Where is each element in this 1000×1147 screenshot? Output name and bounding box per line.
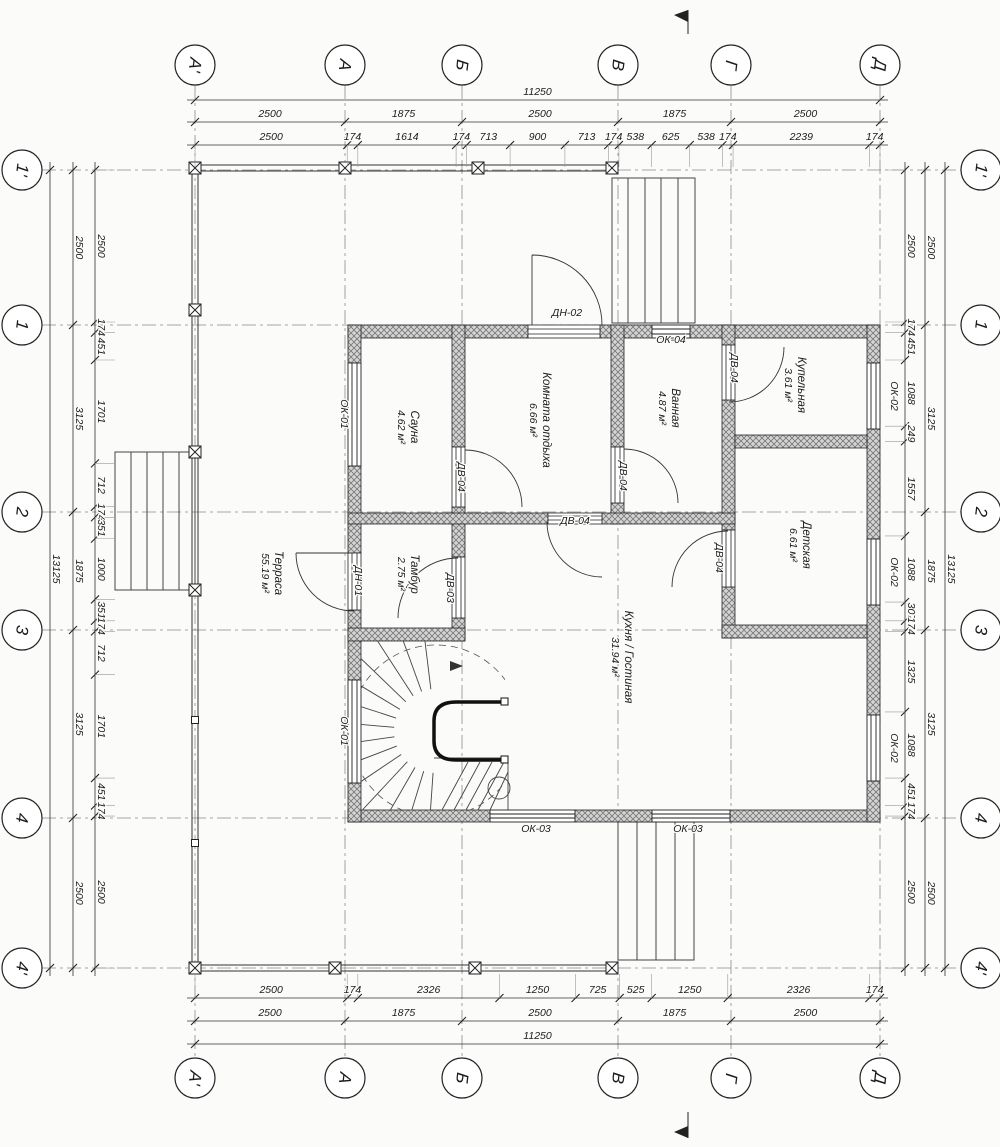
room-label: Ванная4.87 м²: [656, 388, 681, 427]
dim-label: 351: [95, 519, 107, 537]
dim-label: 1701: [95, 715, 107, 738]
dim-label: 3125: [73, 712, 85, 736]
stair-handrail: [434, 702, 505, 760]
dim-label: 1875: [73, 559, 85, 583]
room-name: Купельная: [795, 357, 807, 413]
room-label: Купельная3.61 м²: [782, 357, 807, 413]
dim-label: 451: [905, 338, 917, 356]
section-marker-top: [674, 10, 688, 34]
room-name: Комната отдыха: [540, 372, 552, 468]
opening-tag: ОК-02: [888, 733, 900, 763]
dim-label: 13125: [50, 554, 62, 583]
dim-label: 174: [95, 319, 107, 337]
walk-direction-arrow: [450, 661, 463, 671]
door-dn02: [528, 325, 600, 338]
dim-label: 2500: [527, 1007, 552, 1019]
left-exterior-stair: [115, 452, 195, 590]
floor-plan-drawing: 1125025001875250018752500250017416141747…: [0, 0, 1000, 1147]
dim-label: 2326: [786, 984, 811, 996]
opening-tag: ДВ-04: [455, 461, 467, 492]
dim-label: 2500: [257, 1007, 282, 1019]
dim-label: 174: [719, 131, 737, 143]
door-swing-arcs: [296, 255, 784, 618]
dim-label: 174: [95, 802, 107, 820]
dim-label: 2500: [925, 880, 937, 905]
dim-label: 713: [480, 131, 498, 143]
axis-bubble-label: Б: [452, 1071, 472, 1084]
window-ok03-2: [652, 810, 730, 822]
opening-tag: ОК-04: [656, 334, 686, 346]
dim-label: 2500: [925, 235, 937, 260]
dim-label: 174: [344, 131, 362, 143]
top-exterior-stair: [612, 178, 695, 323]
dim-label: 2500: [793, 1007, 818, 1019]
dim-label: 2500: [905, 233, 917, 258]
room-label: Детская6.61 м²: [787, 519, 812, 569]
axis-bubble-label: А': [185, 1069, 206, 1088]
dim-label: 538: [697, 131, 715, 143]
dim-label: 11250: [523, 86, 552, 98]
dim-label: 451: [95, 783, 107, 801]
walk-line: [350, 645, 522, 817]
dim-label: 1875: [663, 1007, 687, 1019]
dim-label: 1875: [392, 108, 416, 120]
axis-bubble-label: А: [335, 1070, 355, 1085]
room-area: 6.61 м²: [787, 528, 799, 563]
dim-label: 1875: [663, 108, 687, 120]
room-label: Комната отдыха6.66 м²: [527, 372, 552, 468]
dim-label: 900: [529, 131, 547, 143]
axis-bubble-label: А': [185, 56, 206, 75]
terrace-post: [192, 840, 199, 847]
window-ok02-1: [867, 363, 880, 429]
opening-tag: ДН-02: [551, 307, 582, 319]
window-ok02-2: [867, 539, 880, 605]
dim-label: 174: [866, 984, 884, 996]
dim-label: 2500: [95, 879, 107, 904]
dim-label: 1701: [95, 400, 107, 423]
opening-tag: ДВ-04: [713, 542, 725, 573]
dim-label: 13125: [945, 554, 957, 583]
dim-label: 174: [905, 319, 917, 337]
dim-label: 351: [95, 601, 107, 619]
room-label: Кухня / Гостиная31.94 м²: [609, 611, 634, 704]
opening-tag: ДВ-04: [728, 352, 740, 383]
dim-label: 174: [344, 984, 362, 996]
terrace-post: [192, 717, 199, 724]
room-area: 55.19 м²: [259, 553, 271, 593]
dim-label: 1000: [95, 557, 107, 581]
dim-label: 2500: [527, 108, 552, 120]
dim-label: 2500: [905, 879, 917, 904]
interior-staircase: [350, 641, 522, 817]
opening-tag: ДВ-04: [559, 515, 590, 527]
dim-label: 3125: [925, 407, 937, 431]
straight-flight-treads: [442, 762, 508, 810]
dim-label: 725: [589, 984, 607, 996]
dim-label: 2239: [789, 131, 814, 143]
dim-label: 174: [905, 802, 917, 820]
window-ok02-3: [867, 715, 880, 781]
dim-label: 713: [578, 131, 596, 143]
room-area: 2.75 м²: [395, 556, 407, 592]
dim-label: 1088: [905, 557, 917, 581]
dim-label: 1088: [905, 381, 917, 405]
dim-label: 174: [95, 617, 107, 635]
newel-post: [488, 777, 510, 799]
dim-label: 174: [605, 131, 623, 143]
section-marker-bottom: [674, 1112, 688, 1138]
dim-label: 2500: [258, 984, 283, 996]
dim-label: 1088: [905, 733, 917, 757]
dim-label: 538: [627, 131, 645, 143]
room-name: Кухня / Гостиная: [622, 611, 634, 704]
dim-label: 451: [905, 783, 917, 801]
dim-label: 1325: [905, 660, 917, 684]
dimension-lines: 1125025001875250018752500250017416141747…: [46, 86, 957, 1048]
opening-tag: ОК-02: [888, 381, 900, 411]
axis-bubble-label: В: [608, 1071, 628, 1085]
dim-label: 2326: [416, 984, 441, 996]
dim-label: 249: [905, 424, 917, 443]
room-area: 31.94 м²: [609, 637, 621, 677]
axis-grid-lines: [42, 85, 961, 1058]
dim-label: 2500: [257, 108, 282, 120]
dim-label: 2500: [258, 131, 283, 143]
opening-tag: ОК-03: [673, 823, 703, 835]
dim-label: 11250: [523, 1030, 552, 1042]
opening-tag: ДВ-04: [617, 460, 629, 491]
dim-label: 1875: [925, 559, 937, 583]
dim-label: 525: [627, 984, 645, 996]
room-area: 6.66 м²: [527, 403, 539, 438]
dim-label: 174: [866, 131, 884, 143]
room-name: Терраса: [272, 551, 284, 595]
opening-tag: ОК-03: [521, 823, 551, 835]
axis-bubbles: А'А'ААББВВГГДД1'1'112233444'4': [2, 45, 1000, 1098]
room-area: 4.87 м²: [656, 391, 668, 426]
dim-label: 1875: [392, 1007, 416, 1019]
room-area: 4.62 м²: [395, 410, 407, 445]
axis-bubble-label: В: [608, 58, 628, 72]
opening-tag: ОК-01: [338, 716, 350, 746]
dim-label: 174: [453, 131, 471, 143]
room-name: Тамбур: [408, 554, 420, 594]
room-label: Тамбур2.75 м²: [395, 554, 420, 594]
dim-label: 451: [95, 338, 107, 356]
dim-label: 3125: [925, 712, 937, 736]
dim-label: 625: [662, 131, 680, 143]
dim-label: 2500: [73, 235, 85, 260]
dim-label: 2500: [73, 880, 85, 905]
opening-tag: ОК-01: [338, 399, 350, 429]
dim-label: 1614: [395, 131, 419, 143]
axis-bubble-label: Б: [452, 58, 472, 71]
floor-plan-canvas: 1125025001875250018752500250017416141747…: [0, 0, 1000, 1147]
room-name: Детская: [800, 519, 812, 569]
dim-label: 712: [95, 644, 107, 662]
opening-tag: ДВ-03: [444, 572, 456, 603]
dim-label: 2500: [95, 233, 107, 258]
dim-label: 712: [95, 476, 107, 494]
room-name: Сауна: [408, 411, 420, 444]
opening-tag: ДН-01: [352, 565, 364, 596]
dim-label: 174: [905, 617, 917, 635]
window-ok03-1: [490, 810, 575, 822]
dim-label: 1250: [678, 984, 702, 996]
room-label: Терраса55.19 м²: [259, 551, 284, 595]
dim-label: 3125: [73, 407, 85, 431]
dim-label: 2500: [793, 108, 818, 120]
dim-label: 1250: [526, 984, 550, 996]
dim-label: 1557: [905, 477, 917, 502]
axis-bubble-label: А: [335, 57, 355, 72]
room-area: 3.61 м²: [782, 368, 794, 403]
room-name: Ванная: [669, 388, 681, 427]
opening-tag: ОК-02: [888, 557, 900, 587]
room-label: Сауна4.62 м²: [395, 410, 420, 445]
